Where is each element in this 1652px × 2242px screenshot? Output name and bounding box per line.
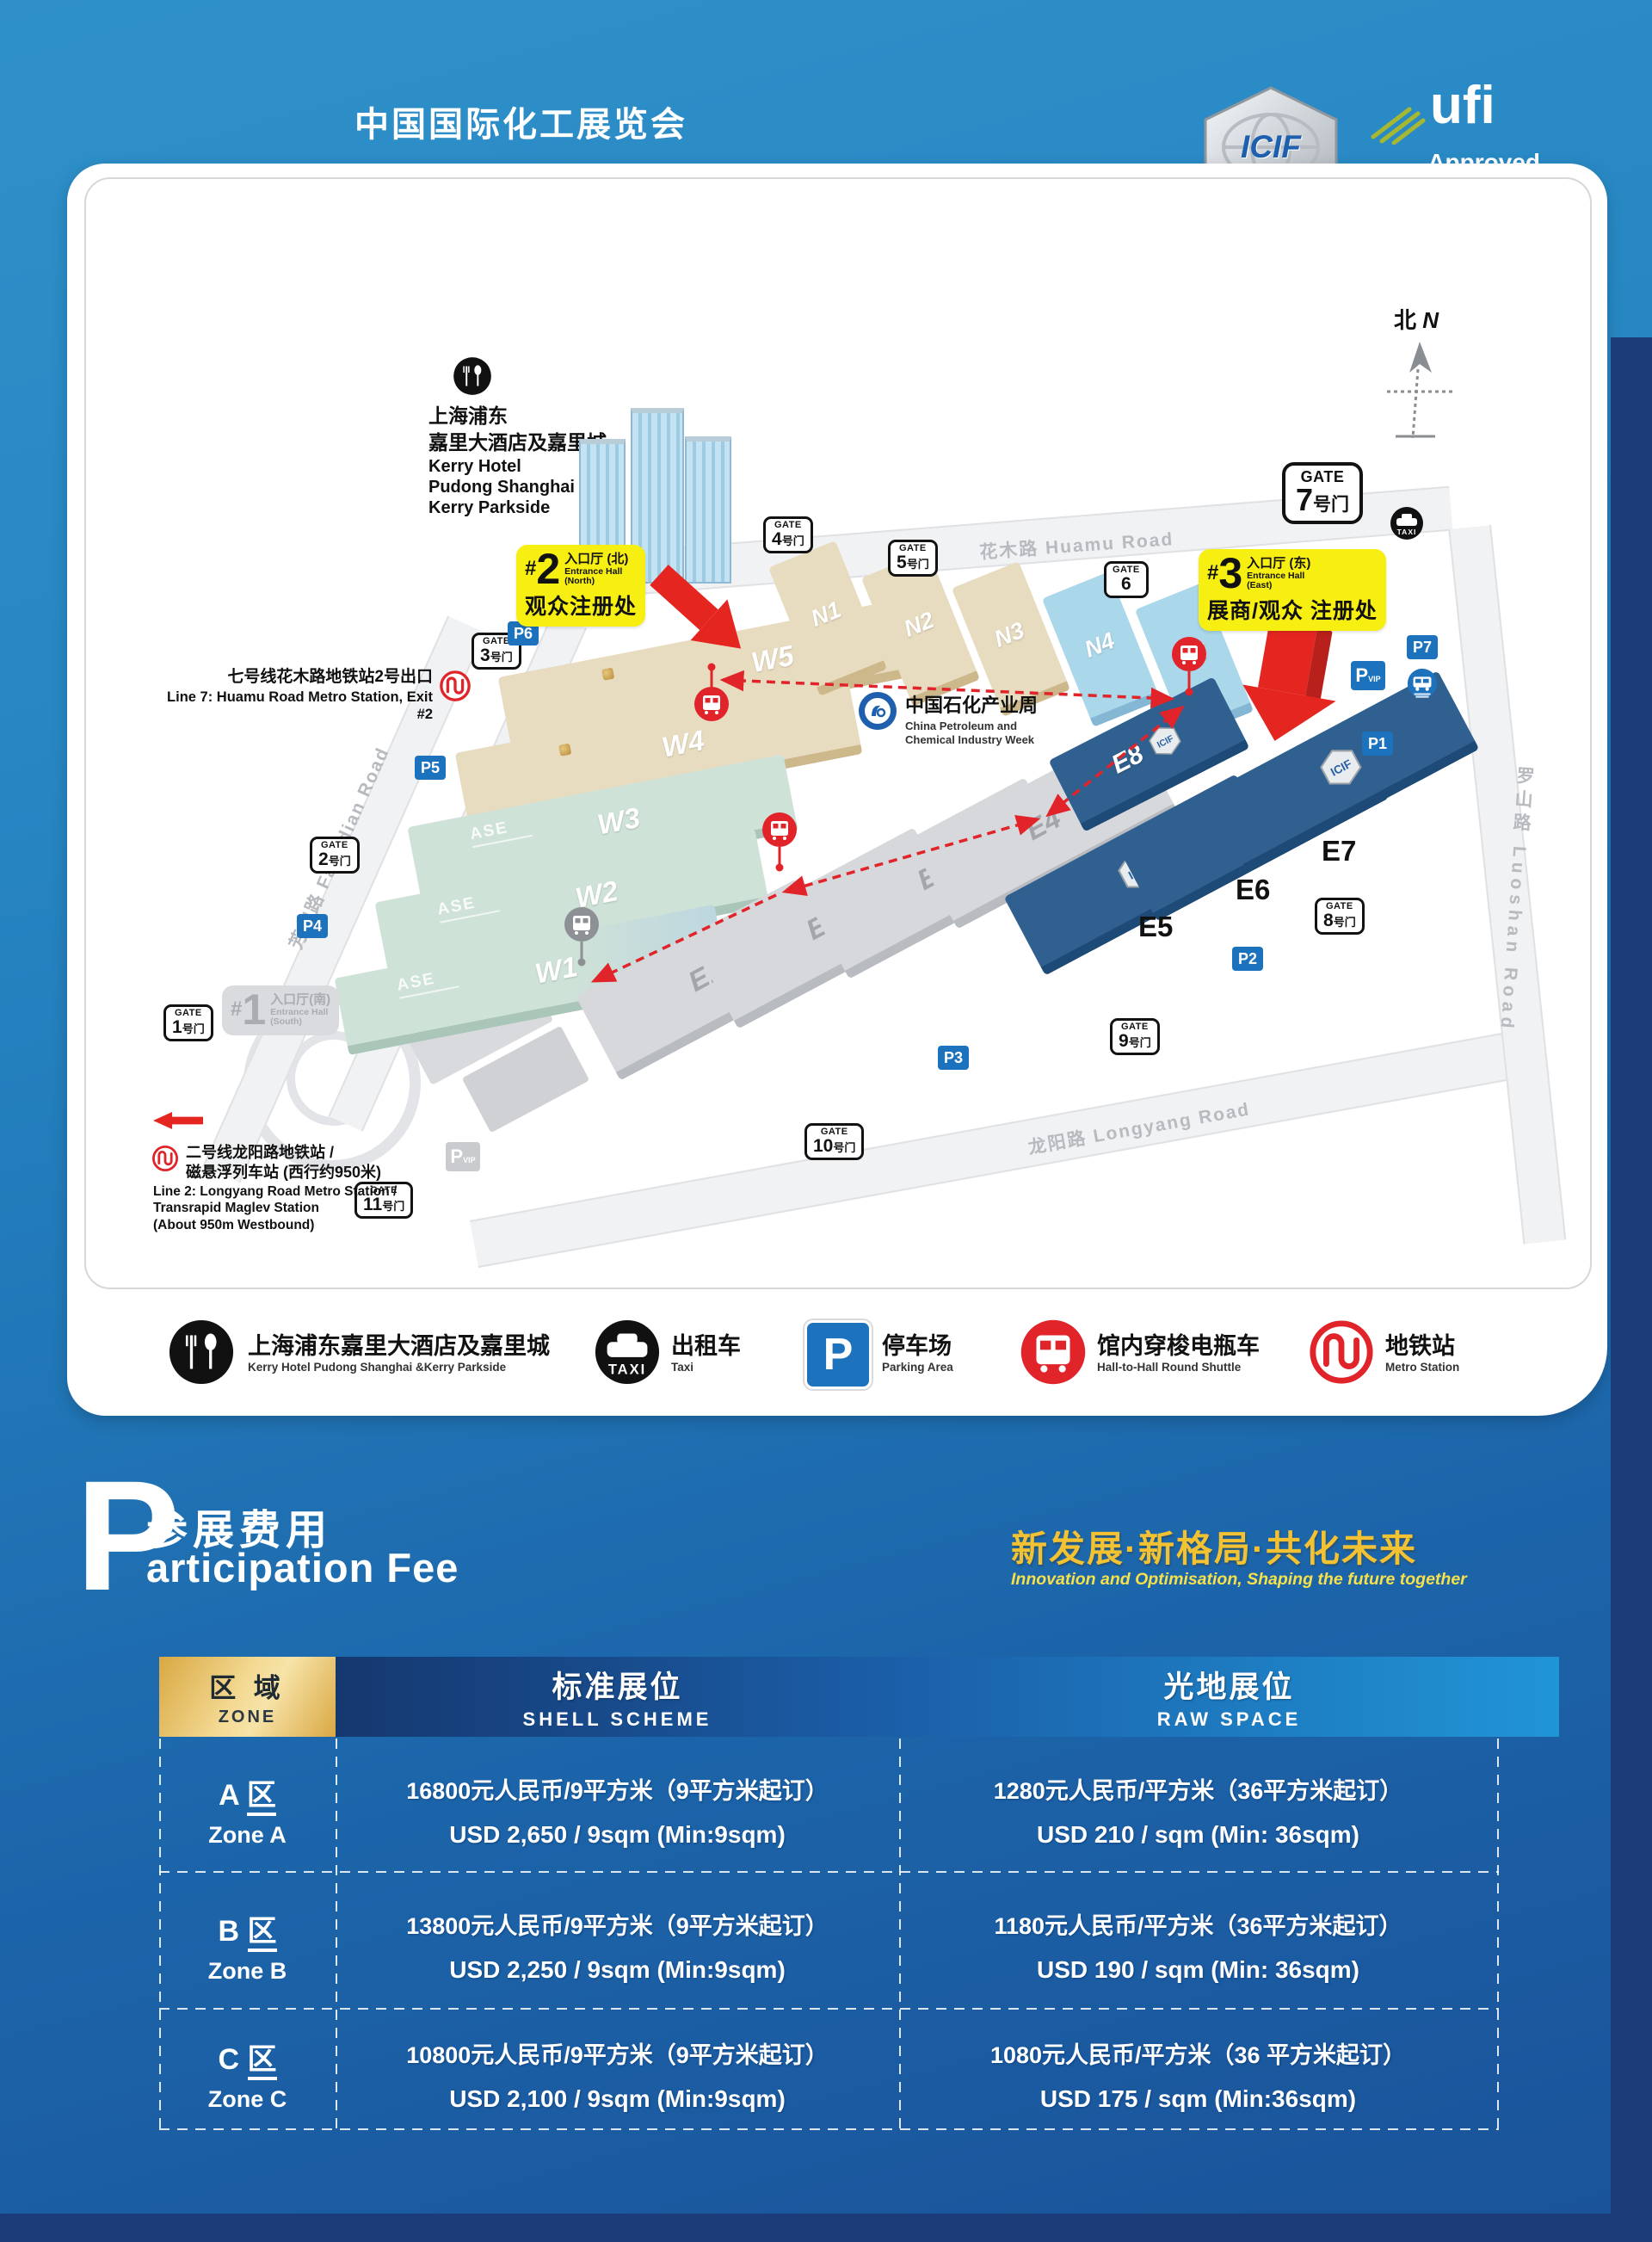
gate-9-sign: GATE9号门 bbox=[1110, 1018, 1160, 1055]
zone-a-label: A 区 Zone A bbox=[159, 1737, 336, 1871]
metro2-en1: Line 2: Longyang Road Metro Station / bbox=[153, 1183, 397, 1200]
gate-6-sign: GATE6 bbox=[1104, 561, 1149, 598]
parking-p3-sign: P3 bbox=[938, 1046, 969, 1070]
gate-7-sign: GATE7号门 bbox=[1282, 462, 1363, 524]
zone-a-raw-price: 1280元人民币/平方米（36平方米起订） USD 210 / sqm (Min… bbox=[899, 1737, 1497, 1871]
shuttle-stop-icon bbox=[761, 811, 798, 873]
metro-icon bbox=[439, 670, 472, 702]
coach-parking-icon bbox=[1406, 667, 1439, 700]
table-header-zone: 区 域 ZONE bbox=[159, 1657, 336, 1737]
grid-line bbox=[336, 1737, 337, 2128]
zone-a-shell-price: 16800元人民币/9平方米（9平方米起订） USD 2,650 / 9sqm … bbox=[336, 1737, 899, 1871]
svg-text:TAXI: TAXI bbox=[1397, 528, 1417, 536]
grid-line bbox=[159, 1737, 161, 2128]
slogan-zh: 新发展·新格局·共化未来 bbox=[1011, 1520, 1417, 1572]
cpciw-en2: Chemical Industry Week bbox=[905, 733, 1034, 746]
grid-line bbox=[899, 1737, 901, 2128]
cpciw-zh: 中国石化产业周 bbox=[905, 690, 1038, 718]
zone-b-label: B 区 Zone B bbox=[159, 1871, 336, 2008]
entrance3-bubble: #3 入口厅 (东)Entrance Hall(East) 展商/观众 注册处 bbox=[1199, 549, 1386, 631]
parking-p1-sign: P1 bbox=[1362, 732, 1393, 756]
metro-line7-note: 七号线花木路地铁站2号出口 Line 7: Huamu Road Metro S… bbox=[149, 667, 433, 724]
cpciw-en1: China Petroleum and bbox=[905, 720, 1017, 732]
gate-10-sign: GATE10号门 bbox=[804, 1123, 864, 1160]
cpciw-label: 中国石化产业周 China Petroleum and Chemical Ind… bbox=[905, 690, 1038, 746]
parking-p7-sign: P7 bbox=[1407, 635, 1438, 659]
metro7-en: Line 7: Huamu Road Metro Station, Exit #… bbox=[149, 689, 433, 724]
table-header-main: 标准展位 SHELL SCHEME 光地展位 RAW SPACE bbox=[336, 1657, 1559, 1737]
page-title: 中国国际化工展览会 bbox=[354, 96, 687, 146]
grid-line bbox=[1497, 1737, 1499, 2128]
icif-logo-text: ICIF bbox=[1198, 129, 1344, 165]
metro2-en2: Transrapid Maglev Station bbox=[153, 1200, 397, 1216]
shuttle-stop-icon-gray bbox=[563, 905, 601, 967]
entrance2-bubble: #2 入口厅 (北)Entrance Hall(North) 观众注册处 bbox=[516, 545, 645, 627]
gate-2-sign: GATE2号门 bbox=[310, 837, 360, 874]
fee-title-en: articipation Fee bbox=[146, 1544, 459, 1591]
grid-line bbox=[159, 2008, 1499, 2010]
bottom-accent-band bbox=[0, 2214, 1652, 2242]
table-row-zone-c: C 区 Zone C 10800元人民币/9平方米（9平方米起订） USD 2,… bbox=[159, 2008, 1497, 2128]
zone-c-shell-price: 10800元人民币/9平方米（9平方米起订） USD 2,100 / 9sqm … bbox=[336, 2008, 899, 2128]
metro7-zh: 七号线花木路地铁站2号出口 bbox=[149, 667, 433, 689]
metro-line2-note: 二号线龙阳路地铁站 / 磁悬浮列车站 (西行约950米) Line 2: Lon… bbox=[186, 1143, 397, 1233]
gate-1-sign: GATE1号门 bbox=[163, 1004, 213, 1041]
zone-b-raw-price: 1180元人民币/平方米（36平方米起订） USD 190 / sqm (Min… bbox=[899, 1871, 1497, 2008]
cpciw-logo-icon bbox=[857, 690, 898, 732]
table-header-raw: 光地展位 RAW SPACE bbox=[899, 1657, 1559, 1737]
zone-b-shell-price: 13800元人民币/9平方米（9平方米起订） USD 2,250 / 9sqm … bbox=[336, 1871, 899, 2008]
gate-5-sign: GATE5号门 bbox=[888, 540, 938, 577]
ufi-lines-icon bbox=[1368, 97, 1428, 145]
venue-map-card: 花木路 Huamu Road 芳甸路 Fangdian Road 龙阳路 Lon… bbox=[67, 164, 1607, 1416]
table-header-shell: 标准展位 SHELL SCHEME bbox=[336, 1657, 899, 1737]
table-row-zone-b: B 区 Zone B 13800元人民币/9平方米（9平方米起订） USD 2,… bbox=[159, 1871, 1497, 2008]
metro-icon bbox=[151, 1145, 179, 1172]
parking-vip-gray-sign: PVIP bbox=[446, 1142, 480, 1171]
slogan-en: Innovation and Optimisation, Shaping the… bbox=[1011, 1570, 1467, 1590]
gate-4-sign: GATE4号门 bbox=[763, 516, 813, 553]
parking-p2-sign: P2 bbox=[1232, 947, 1263, 971]
parking-vip-sign: PVIP bbox=[1351, 661, 1385, 690]
grid-line bbox=[159, 1871, 1499, 1873]
parking-p4-sign: P4 bbox=[297, 914, 328, 938]
metro2-en3: (About 950m Westbound) bbox=[153, 1217, 397, 1233]
entrance2-arrow bbox=[641, 554, 760, 669]
right-accent-band bbox=[1611, 337, 1652, 2242]
shuttle-stop-icon bbox=[1170, 635, 1208, 697]
gate-8-sign: GATE8号门 bbox=[1315, 898, 1365, 935]
taxi-icon: TAXI bbox=[1390, 506, 1424, 540]
parking-p5-sign: P5 bbox=[415, 756, 446, 780]
zone-c-raw-price: 1080元人民币/平方米（36 平方米起订） USD 175 / sqm (Mi… bbox=[899, 2008, 1497, 2128]
shuttle-stop-icon bbox=[693, 661, 730, 723]
cpciw-en: China Petroleum and Chemical Industry We… bbox=[905, 720, 1038, 746]
metro2-zh1: 二号线龙阳路地铁站 / bbox=[186, 1143, 397, 1163]
table-row-zone-a: A 区 Zone A 16800元人民币/9平方米（9平方米起订） USD 2,… bbox=[159, 1737, 1497, 1871]
brochure-page: 中国国际化工展览会 ICIF CHINA ufi Approved Event bbox=[0, 0, 1652, 2242]
grid-line bbox=[159, 2128, 1499, 2130]
metro2-zh2: 磁悬浮列车站 (西行约950米) bbox=[186, 1163, 397, 1183]
zone-c-label: C 区 Zone C bbox=[159, 2008, 336, 2128]
ufi-logo-text: ufi bbox=[1430, 82, 1495, 130]
